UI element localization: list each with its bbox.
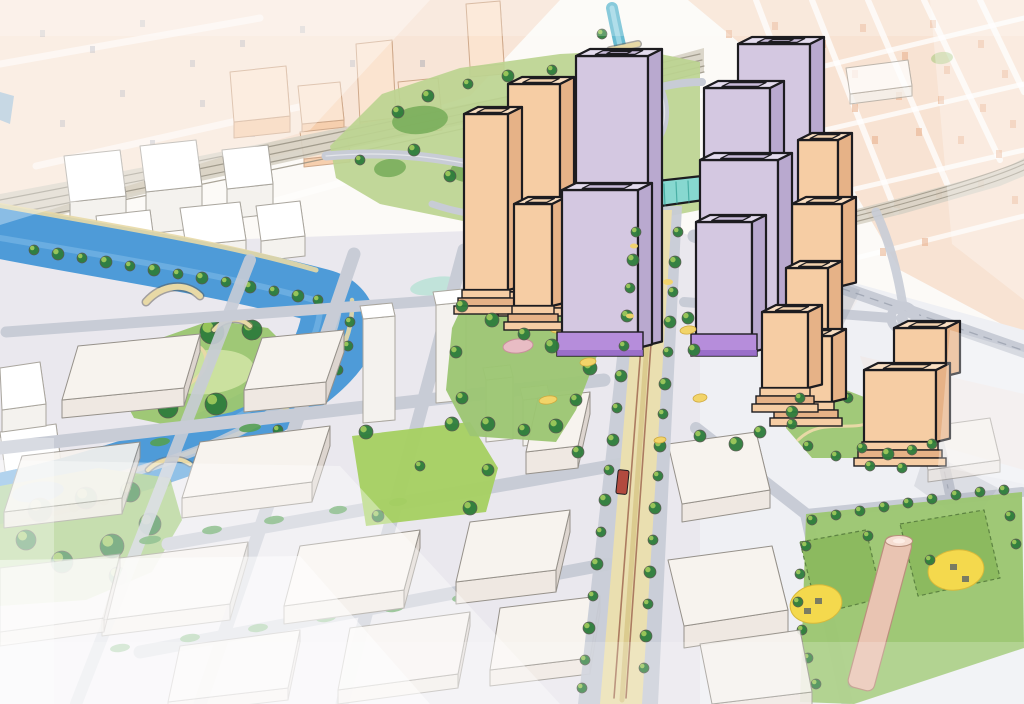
tower-orange-west-a	[454, 107, 522, 314]
city-block	[668, 546, 788, 648]
riverside-building	[256, 201, 305, 261]
flower-bed	[663, 279, 673, 285]
tower-far-east-lower	[854, 363, 950, 466]
tower-lavender-front	[557, 183, 652, 356]
tower-lavender-east-d	[691, 215, 766, 356]
context-building	[846, 60, 912, 104]
roundabout-center	[899, 314, 907, 322]
city-block	[62, 334, 200, 418]
masterplan-illustration: Hand-drawn aerial masterplan illustratio…	[0, 0, 1024, 704]
midrise-tower	[360, 303, 395, 423]
city-block	[668, 432, 770, 522]
riverside-building	[0, 362, 46, 432]
landmark-tower-cap-inner	[893, 539, 905, 544]
flower-bed	[626, 314, 634, 319]
fade-overlay	[938, 330, 1024, 484]
tram-vehicle	[616, 470, 629, 495]
fade-overlay	[0, 438, 54, 704]
city-block	[456, 510, 570, 604]
scene-canvas	[0, 0, 1024, 704]
fade-overlay	[0, 642, 1024, 704]
flower-bed	[630, 244, 638, 249]
tower-orange-east-3	[752, 305, 822, 412]
fade-overlay	[0, 0, 1024, 36]
